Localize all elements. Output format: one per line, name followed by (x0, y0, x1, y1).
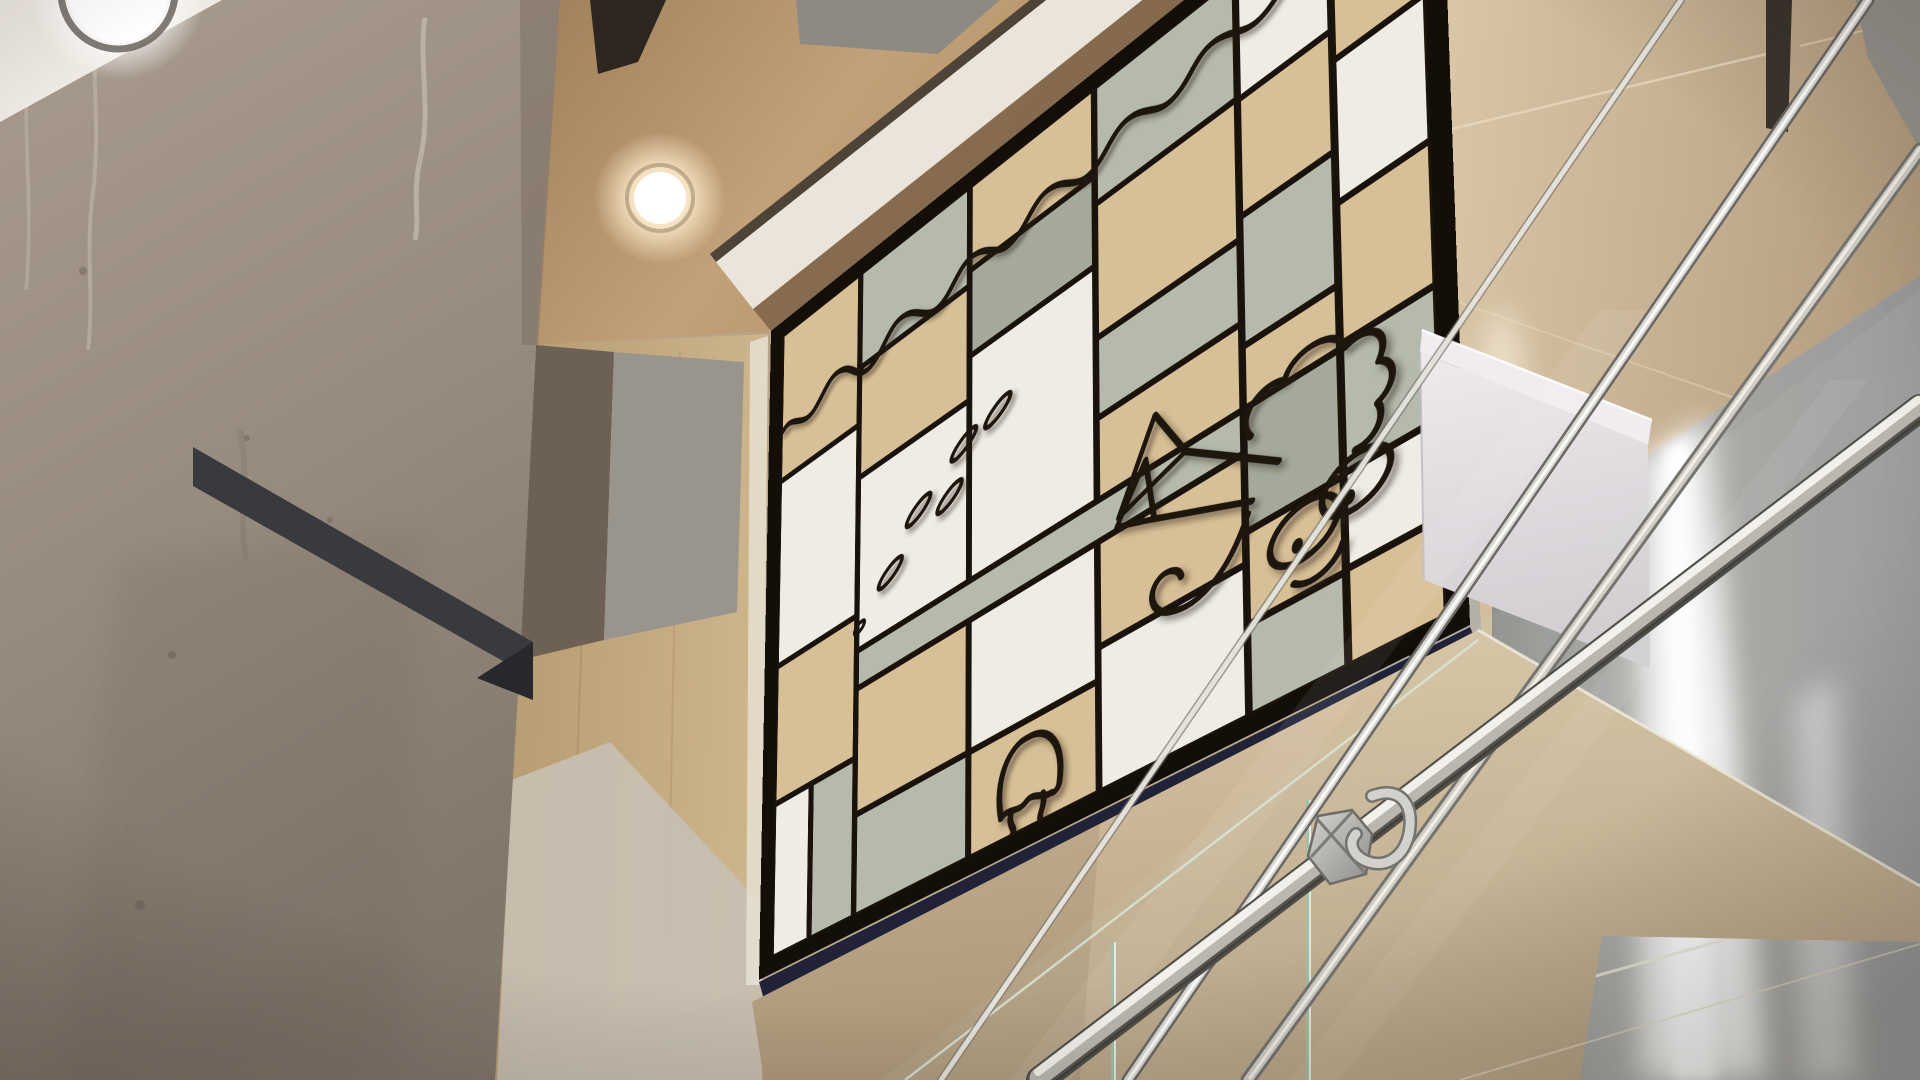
vignette-overlay (0, 0, 1920, 1080)
atrium-photo (0, 0, 1920, 1080)
stair-foreground (0, 0, 1920, 1080)
